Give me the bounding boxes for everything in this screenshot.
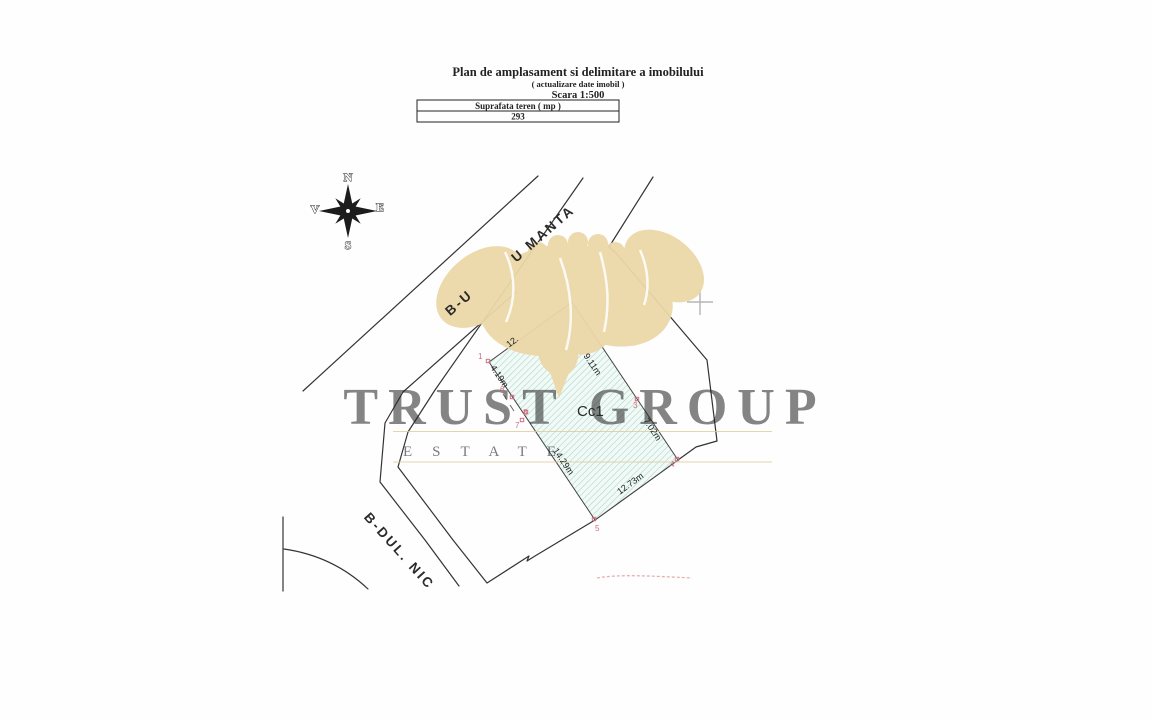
plan-subtitle: ( actualizare date imobil )	[532, 79, 625, 89]
point-5: 5	[595, 524, 600, 533]
area-table-value: 293	[511, 112, 525, 122]
point-6: 6	[500, 385, 505, 394]
point-7: 7	[515, 421, 520, 430]
watermark-subtext: ESTATE	[403, 444, 576, 460]
point-4: 4	[670, 460, 675, 469]
compass-letter-n: N	[344, 170, 353, 184]
parcel-label-cc1: Cc1	[577, 403, 604, 420]
area-table-header: Suprafata teren ( mp )	[475, 101, 561, 111]
point-1: 1	[478, 352, 483, 361]
site-plan-drawing: Plan de amplasament si delimitare a imob…	[0, 0, 1152, 720]
point-3: 3	[633, 401, 638, 410]
plan-scale: Scara 1:500	[552, 90, 605, 101]
compass-letter-s: S	[345, 238, 352, 252]
point-8: 8	[523, 408, 528, 417]
compass-letter-v: V	[311, 202, 320, 216]
compass-letter-e: E	[376, 200, 384, 214]
plan-title: Plan de amplasament si delimitare a imob…	[452, 65, 704, 79]
scanned-cadastral-plan-page: Plan de amplasament si delimitare a imob…	[0, 0, 1152, 720]
